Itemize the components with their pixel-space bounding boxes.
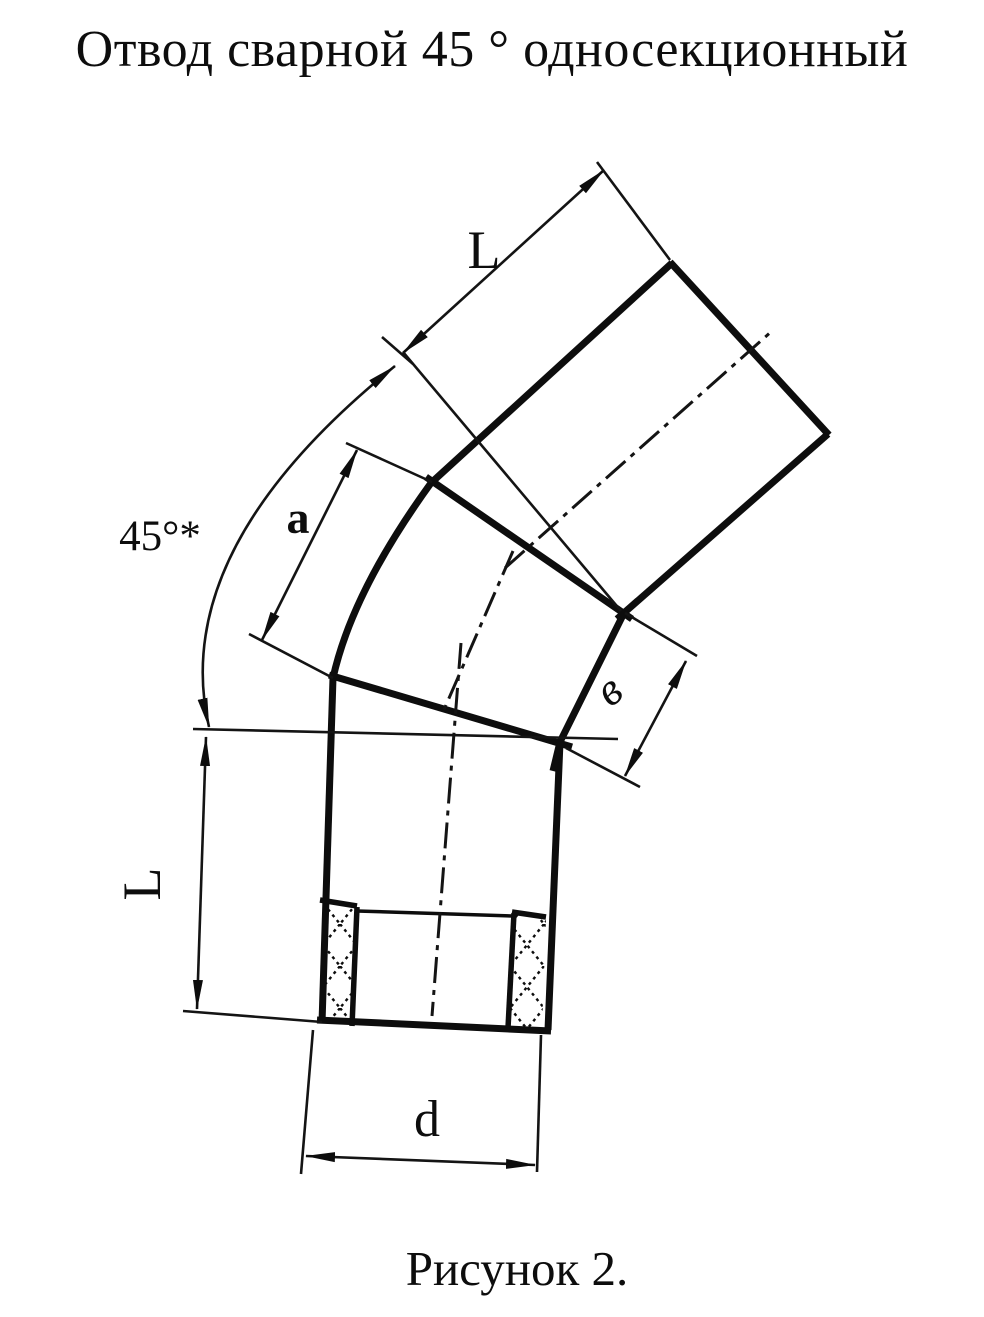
ext-line-a-bottom: [249, 634, 333, 678]
dim-line-a: [262, 450, 357, 640]
dim-line-d: [306, 1156, 535, 1165]
upper-weld-joint: [426, 477, 632, 619]
top-pipe-centerline: [505, 331, 772, 568]
ext-line-end-face: [597, 162, 670, 260]
label-a: a: [287, 492, 310, 543]
ext-line-d-left: [301, 1030, 313, 1174]
middle-section-centerline: [443, 551, 513, 712]
inner-bore-line: [357, 911, 513, 916]
ext-line-v-top: [625, 613, 697, 656]
label-left-L: L: [112, 868, 172, 901]
label-angle-45: 45°*: [119, 513, 201, 560]
elbow-technical-drawing: L 45°* a в L d: [0, 0, 984, 1317]
label-v: в: [585, 664, 632, 717]
ext-line-a-top: [346, 443, 432, 482]
top-pipe-end-face: [670, 262, 829, 435]
angle-arc-45: [203, 366, 395, 727]
dim-line-top-L: [403, 170, 604, 353]
ext-line-d-right: [537, 1035, 541, 1172]
scanned-figure-page: Отвод сварной 45 ° односекционный: [0, 0, 984, 1317]
ext-line-joint-horizontal: [193, 729, 618, 739]
bottom-pipe-right-edge: [548, 742, 560, 1030]
top-pipe-right-edge: [617, 434, 828, 619]
dim-line-v: [625, 661, 686, 776]
label-top-L: L: [468, 220, 501, 280]
bottom-pipe-centerline: [432, 643, 461, 1016]
dim-tick-top-L: [382, 337, 413, 364]
ext-line-bottom-horizontal: [183, 1011, 322, 1022]
middle-section-left-edge: [333, 483, 431, 678]
figure-caption: Рисунок 2.: [0, 1240, 984, 1297]
dim-line-left-L: [197, 737, 206, 1009]
label-d: d: [414, 1091, 440, 1148]
